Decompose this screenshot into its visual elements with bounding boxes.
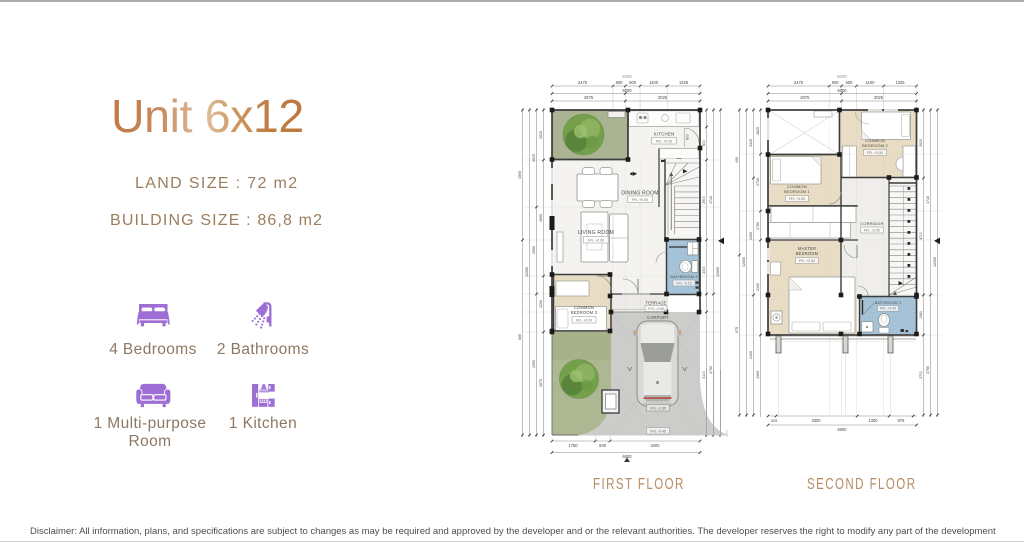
svg-text:FFL +0.00: FFL +0.00 bbox=[632, 198, 648, 202]
svg-text:TERRACE: TERRACE bbox=[646, 301, 667, 306]
svg-text:FFL +3.50: FFL +3.50 bbox=[799, 259, 815, 263]
svg-text:4650: 4650 bbox=[539, 214, 543, 222]
svg-text:KITCHEN: KITCHEN bbox=[654, 132, 675, 137]
svg-text:800: 800 bbox=[518, 334, 522, 340]
svg-text:3700: 3700 bbox=[926, 366, 930, 374]
svg-text:4710: 4710 bbox=[926, 196, 930, 204]
svg-text:500: 500 bbox=[832, 80, 840, 85]
svg-text:2025: 2025 bbox=[539, 131, 543, 139]
svg-text:12000: 12000 bbox=[525, 267, 529, 277]
svg-text:FFL +3.50: FFL +3.50 bbox=[864, 228, 880, 232]
svg-text:3025: 3025 bbox=[658, 95, 668, 100]
svg-text:1363: 1363 bbox=[919, 311, 923, 319]
svg-text:1100: 1100 bbox=[649, 80, 659, 85]
svg-text:1100: 1100 bbox=[866, 80, 876, 85]
svg-text:DINING ROOM: DINING ROOM bbox=[621, 191, 658, 197]
svg-text:600: 600 bbox=[846, 80, 854, 85]
svg-text:BATHROOM 2: BATHROOM 2 bbox=[670, 274, 697, 279]
svg-text:3700: 3700 bbox=[709, 366, 713, 374]
svg-text:800: 800 bbox=[686, 134, 690, 140]
svg-text:4369: 4369 bbox=[756, 371, 760, 379]
svg-text:LIVING ROOM: LIVING ROOM bbox=[578, 230, 614, 236]
svg-text:CORRIDOR: CORRIDOR bbox=[860, 221, 883, 226]
svg-text:975: 975 bbox=[898, 418, 906, 423]
svg-text:FFL +0.05: FFL +0.05 bbox=[656, 139, 672, 143]
svg-text:FFL +3.45: FFL +3.45 bbox=[880, 307, 896, 311]
svg-text:FFL -0.30: FFL -0.30 bbox=[650, 406, 665, 410]
svg-text:2300: 2300 bbox=[702, 266, 706, 274]
svg-text:3400: 3400 bbox=[650, 443, 660, 448]
svg-text:325: 325 bbox=[771, 418, 778, 423]
svg-text:4710: 4710 bbox=[709, 196, 713, 204]
svg-text:6000: 6000 bbox=[622, 74, 632, 79]
svg-text:600: 600 bbox=[599, 443, 607, 448]
svg-text:6000: 6000 bbox=[622, 88, 632, 93]
svg-text:FFL -0.45: FFL -0.45 bbox=[650, 429, 665, 433]
svg-text:2730: 2730 bbox=[756, 178, 760, 186]
svg-text:2400: 2400 bbox=[749, 351, 753, 359]
svg-text:BEDROOM 3: BEDROOM 3 bbox=[571, 310, 598, 315]
svg-text:2900: 2900 bbox=[702, 196, 706, 204]
svg-text:FFL +3.50: FFL +3.50 bbox=[867, 151, 883, 155]
svg-text:3100: 3100 bbox=[702, 371, 706, 379]
svg-text:1750: 1750 bbox=[756, 222, 760, 230]
svg-text:BEDROOM 2: BEDROOM 2 bbox=[862, 143, 888, 148]
svg-text:675: 675 bbox=[735, 327, 739, 333]
svg-text:12000: 12000 bbox=[716, 267, 720, 277]
svg-text:FFL +3.50: FFL +3.50 bbox=[789, 197, 805, 201]
svg-text:3025: 3025 bbox=[874, 95, 884, 100]
svg-text:2250: 2250 bbox=[539, 300, 543, 308]
svg-text:2100: 2100 bbox=[756, 283, 760, 291]
svg-text:12000: 12000 bbox=[742, 257, 746, 267]
svg-text:1300: 1300 bbox=[868, 418, 878, 423]
svg-text:2975: 2975 bbox=[584, 95, 594, 100]
svg-text:3075: 3075 bbox=[539, 379, 543, 387]
svg-text:BATHROOM 1: BATHROOM 1 bbox=[875, 301, 902, 305]
svg-text:400: 400 bbox=[735, 157, 739, 163]
svg-text:1325: 1325 bbox=[895, 80, 905, 85]
svg-text:1500: 1500 bbox=[518, 171, 522, 179]
svg-text:BEDROOM: BEDROOM bbox=[796, 251, 819, 256]
svg-text:2975: 2975 bbox=[800, 95, 810, 100]
svg-text:BEDROOM 1: BEDROOM 1 bbox=[784, 189, 810, 194]
svg-text:6000: 6000 bbox=[837, 427, 847, 432]
svg-text:500: 500 bbox=[616, 80, 624, 85]
svg-text:1750: 1750 bbox=[568, 443, 578, 448]
svg-text:800: 800 bbox=[702, 140, 706, 146]
svg-text:1325: 1325 bbox=[679, 80, 689, 85]
svg-text:FFL +0.00: FFL +0.00 bbox=[588, 238, 604, 242]
svg-text:3025: 3025 bbox=[532, 154, 536, 162]
svg-text:6000: 6000 bbox=[837, 74, 847, 79]
svg-text:2475: 2475 bbox=[794, 80, 804, 85]
svg-text:6000: 6000 bbox=[837, 88, 847, 93]
svg-text:2900: 2900 bbox=[532, 246, 536, 254]
svg-text:CARPORT: CARPORT bbox=[647, 315, 669, 320]
svg-text:3300: 3300 bbox=[811, 418, 821, 423]
svg-text:FFL -0.15: FFL -0.15 bbox=[676, 281, 691, 285]
svg-text:2475: 2475 bbox=[578, 80, 588, 85]
svg-text:3325: 3325 bbox=[749, 139, 753, 147]
svg-text:2050: 2050 bbox=[532, 360, 536, 368]
svg-text:1825: 1825 bbox=[756, 127, 760, 135]
svg-text:600: 600 bbox=[629, 80, 637, 85]
svg-text:3700: 3700 bbox=[919, 371, 923, 379]
svg-text:12000: 12000 bbox=[933, 257, 937, 267]
svg-text:2625: 2625 bbox=[919, 139, 923, 147]
svg-text:4710: 4710 bbox=[919, 232, 923, 240]
svg-text:2300: 2300 bbox=[749, 232, 753, 240]
svg-text:FFL +0.00: FFL +0.00 bbox=[576, 318, 592, 322]
svg-text:FFL -0.05: FFL -0.05 bbox=[648, 307, 663, 311]
